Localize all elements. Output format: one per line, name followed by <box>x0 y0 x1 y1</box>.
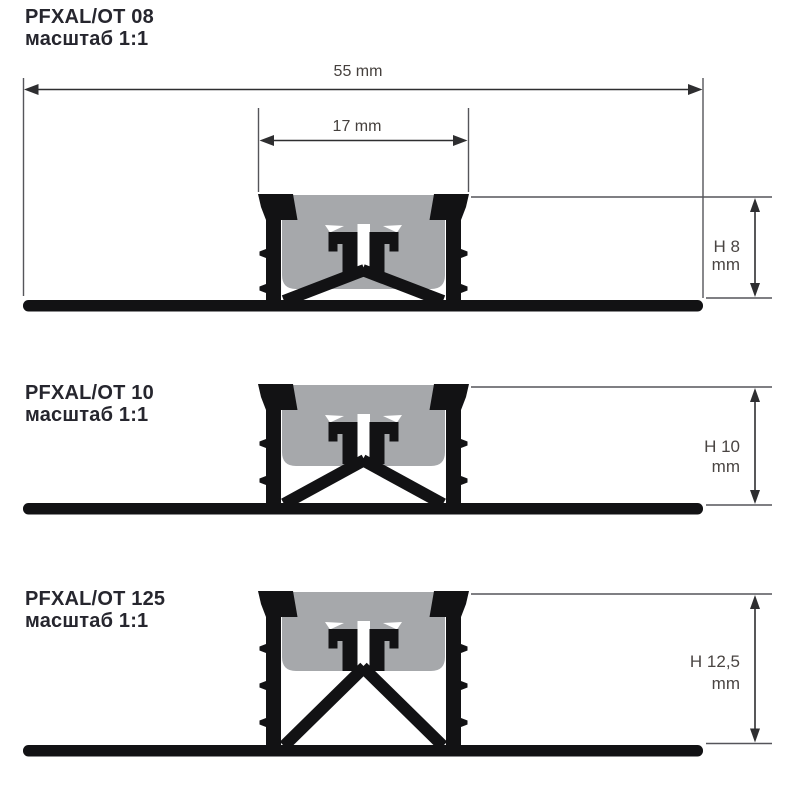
barb-right <box>461 439 468 448</box>
hook-tab-right <box>390 629 399 649</box>
anchor-leg-left <box>284 667 365 746</box>
title-block-125: PFXAL/OT 125 масштаб 1:1 <box>25 588 165 632</box>
barb-left <box>260 644 267 653</box>
barb-left <box>260 681 267 690</box>
head-left <box>258 384 298 410</box>
barb-left <box>260 718 267 727</box>
riser-right <box>446 397 461 514</box>
riser-right <box>446 207 461 311</box>
riser-left <box>266 207 281 311</box>
profile-name: PFXAL/OT 08 <box>25 6 154 28</box>
profile-name: PFXAL/OT 10 <box>25 382 154 404</box>
title-block-10: PFXAL/OT 10 масштаб 1:1 <box>25 382 154 426</box>
h-arrow-up <box>750 388 760 402</box>
total-width-dim-label: 55 mm <box>334 63 383 80</box>
hook-tab-left <box>329 422 338 442</box>
head-right <box>430 384 470 410</box>
title-block-08: PFXAL/OT 08 масштаб 1:1 <box>25 6 154 50</box>
center-slot <box>358 224 371 269</box>
h-arrow-up <box>750 198 760 212</box>
head-right <box>430 194 470 220</box>
hook-tab-left <box>329 232 338 252</box>
insert-width-arrow-left <box>260 135 275 146</box>
insert-width-dim-label: 17 mm <box>333 118 382 135</box>
profile-cross-section-0 <box>23 194 772 312</box>
center-slot <box>358 621 371 666</box>
barb-left <box>260 249 267 258</box>
profile-scale: масштаб 1:1 <box>25 404 154 426</box>
profile-scale: масштаб 1:1 <box>25 28 154 50</box>
base-flange <box>23 503 703 515</box>
anchor-leg-right <box>363 460 444 504</box>
barb-left <box>260 476 267 485</box>
anchor-leg-right <box>363 667 444 746</box>
height-dim-value-125: H 12,5 <box>690 652 740 671</box>
h-arrow-up <box>750 595 760 609</box>
h-arrow-down <box>750 283 760 297</box>
height-dim-unit-10: mm <box>712 457 740 476</box>
hook-tab-left <box>329 629 338 649</box>
insert-width-arrow-right <box>453 135 468 146</box>
riser-left <box>266 397 281 514</box>
barb-right <box>461 284 468 293</box>
height-dim-value-08: H 8 <box>714 237 740 256</box>
barb-left <box>260 439 267 448</box>
profile-scale: масштаб 1:1 <box>25 610 165 632</box>
h-arrow-down <box>750 490 760 504</box>
riser-left <box>266 604 281 756</box>
barb-left <box>260 284 267 293</box>
hook-tab-right <box>390 232 399 252</box>
profile-name: PFXAL/OT 125 <box>25 588 165 610</box>
head-left <box>258 591 298 617</box>
hook-tab-right <box>390 422 399 442</box>
total-width-arrow-right <box>688 84 703 95</box>
base-flange <box>23 745 703 757</box>
head-left <box>258 194 298 220</box>
barb-right <box>461 644 468 653</box>
total-width-arrow-left <box>24 84 39 95</box>
height-dim-unit-08: mm <box>712 255 740 274</box>
riser-right <box>446 604 461 756</box>
head-right <box>430 591 470 617</box>
drawing-sheet: 55 mm 17 mm H 8 mm H 10 mm H 12,5 mm PFX… <box>0 0 800 800</box>
height-dim-unit-125: mm <box>712 674 740 693</box>
barb-right <box>461 681 468 690</box>
barb-right <box>461 718 468 727</box>
height-dim-value-10: H 10 <box>704 437 740 456</box>
barb-right <box>461 476 468 485</box>
anchor-leg-left <box>284 460 365 504</box>
barb-right <box>461 249 468 258</box>
center-slot <box>358 414 371 459</box>
base-flange <box>23 300 703 312</box>
h-arrow-down <box>750 729 760 743</box>
